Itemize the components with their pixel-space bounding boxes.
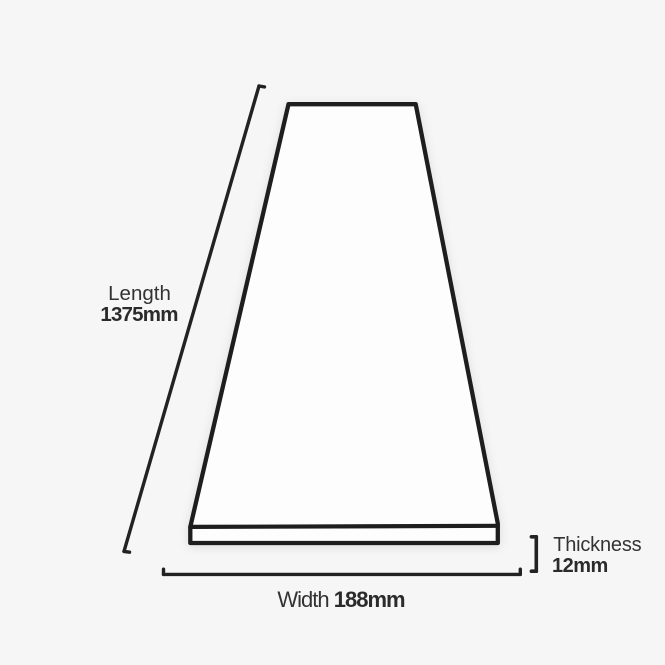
svg-text:1375mm: 1375mm [100, 303, 177, 326]
svg-text:Thickness: Thickness [553, 534, 641, 556]
svg-text:Length: Length [108, 282, 171, 305]
svg-text:Width 188mm: Width 188mm [277, 587, 405, 612]
svg-text:12mm: 12mm [552, 555, 608, 577]
